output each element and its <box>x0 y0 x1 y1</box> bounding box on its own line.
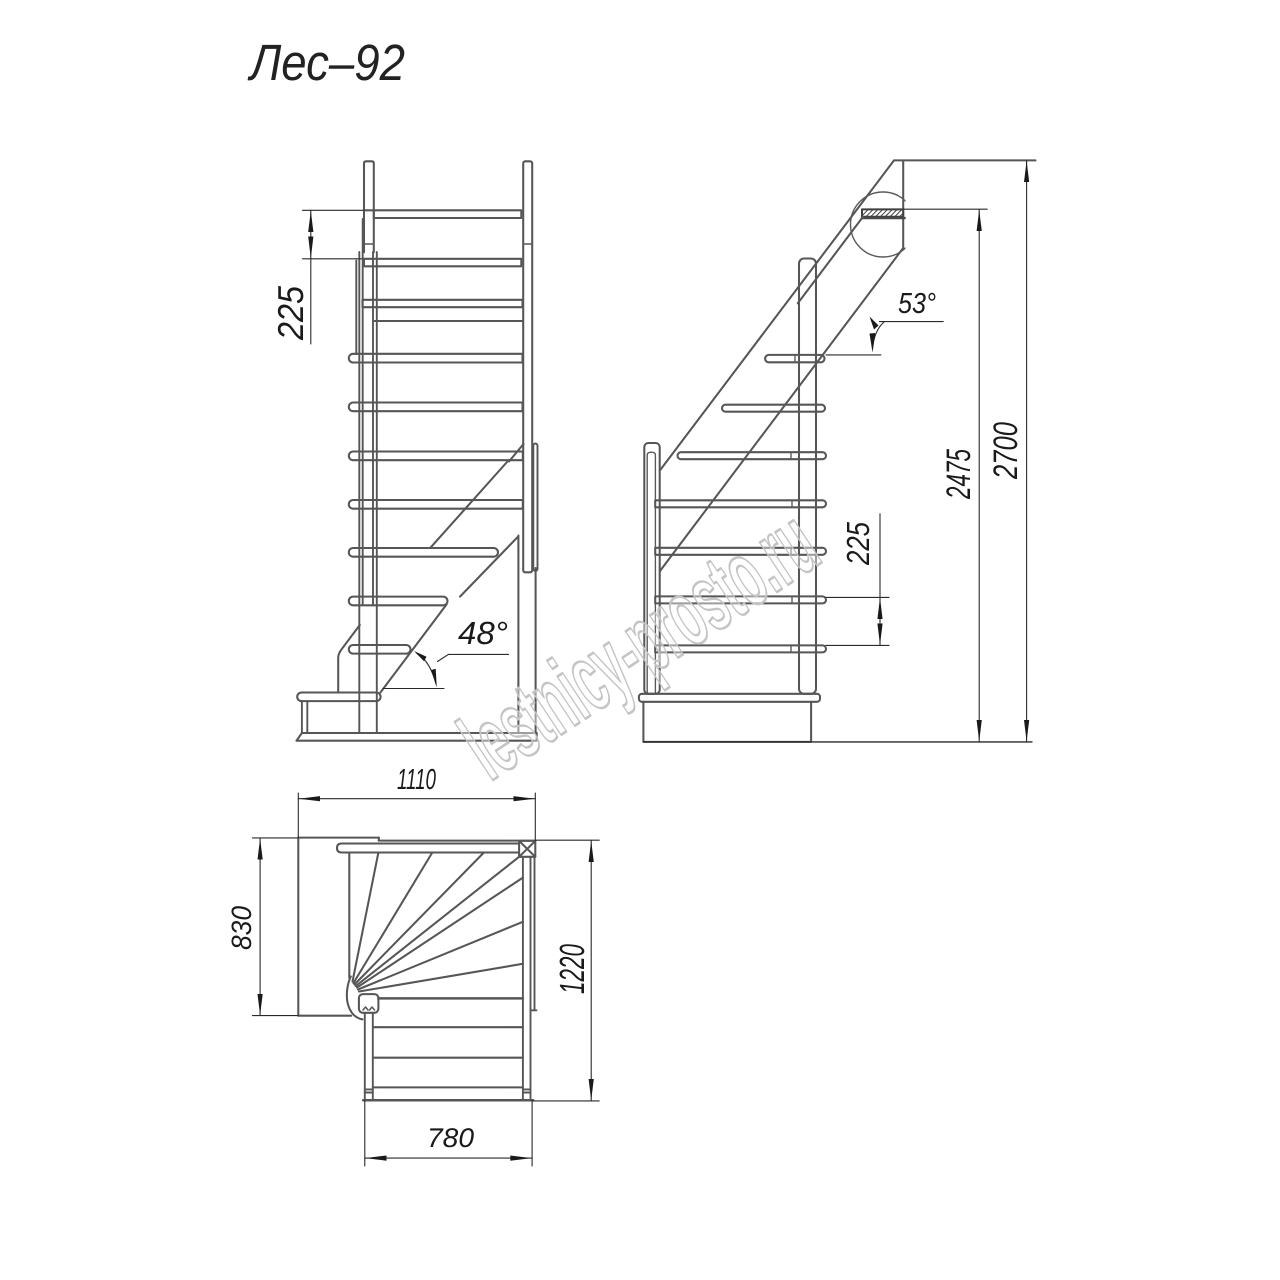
svg-text:2700: 2700 <box>987 422 1025 480</box>
svg-text:1110: 1110 <box>397 764 436 796</box>
svg-text:830: 830 <box>226 906 257 950</box>
svg-text:1220: 1220 <box>553 944 592 994</box>
svg-text:780: 780 <box>427 1123 474 1153</box>
svg-text:Лес–92: Лес–92 <box>247 34 405 91</box>
svg-text:2475: 2475 <box>940 449 978 500</box>
svg-text:225: 225 <box>840 522 876 566</box>
svg-text:48°: 48° <box>458 615 508 651</box>
svg-text:53°: 53° <box>898 288 936 320</box>
svg-text:225: 225 <box>270 285 311 341</box>
